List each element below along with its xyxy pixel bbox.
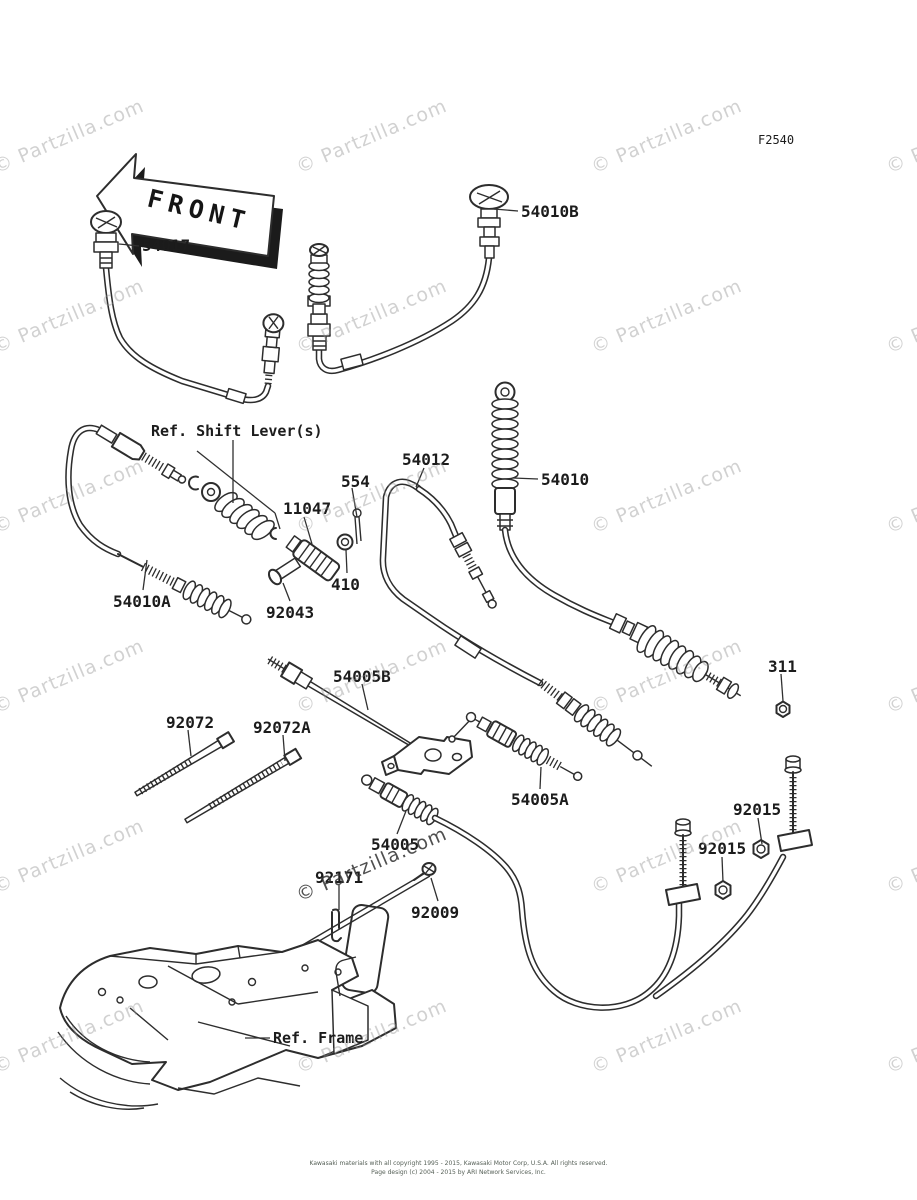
parts-diagram-page: FRONT bbox=[0, 0, 917, 1200]
part-label-54010a: 54010A bbox=[113, 592, 171, 611]
part-label-54012: 54012 bbox=[402, 450, 450, 469]
nut-92015-right-drawing bbox=[754, 840, 769, 858]
washer-410-drawing bbox=[338, 535, 353, 550]
leader-line-92072a bbox=[283, 735, 285, 761]
leader-line-92043 bbox=[283, 583, 290, 601]
part-label-410: 410 bbox=[331, 575, 360, 594]
leader-line-ref-shift-lever bbox=[275, 513, 280, 529]
cable-54010b-drawing bbox=[308, 185, 508, 371]
leader-line-92015-left bbox=[722, 857, 723, 882]
part-label-92009: 92009 bbox=[411, 903, 459, 922]
frame-graphic bbox=[58, 904, 396, 1110]
leader-line-410 bbox=[346, 550, 347, 573]
leader-line-54005b bbox=[362, 684, 368, 710]
part-label-54010b: 54010B bbox=[521, 202, 579, 221]
leader-line-92009 bbox=[431, 878, 438, 901]
tie-92072a-drawing bbox=[183, 749, 301, 826]
part-label-figure-code: F2540 bbox=[758, 133, 794, 147]
part-label-311: 311 bbox=[768, 657, 797, 676]
part-label-54010: 54010 bbox=[541, 470, 589, 489]
nut-311-drawing bbox=[777, 702, 790, 718]
leader-line-54005a bbox=[540, 767, 541, 789]
cable-clamp bbox=[666, 884, 700, 905]
nut-92015-left-drawing bbox=[716, 881, 731, 899]
circlip-icon bbox=[271, 528, 277, 539]
bolt-92015-right-drawing bbox=[778, 756, 812, 851]
footer-copyright-line1: Kawasaki materials with all copyright 19… bbox=[0, 1160, 917, 1167]
bolt-92015-left-drawing bbox=[666, 819, 700, 905]
part-label-92072: 92072 bbox=[166, 713, 214, 732]
tie-92072-drawing bbox=[133, 732, 234, 799]
cable-clamp bbox=[778, 830, 812, 851]
part-label-ref-frame: Ref. Frame bbox=[273, 1029, 363, 1047]
part-label-ref-shift-lever: Ref. Shift Lever(s) bbox=[151, 422, 323, 440]
part-label-92072a: 92072A bbox=[253, 718, 311, 737]
cable-54010-drawing bbox=[492, 383, 748, 709]
washer-icon bbox=[202, 483, 220, 501]
part-label-54005a: 54005A bbox=[511, 790, 569, 809]
part-label-11047: 11047 bbox=[283, 499, 331, 518]
screw-92009-drawing bbox=[414, 863, 436, 880]
leader-line-54005 bbox=[397, 811, 406, 834]
leader-line-54012 bbox=[416, 468, 424, 487]
cable-54005a-drawing bbox=[463, 707, 586, 786]
part-label-54005: 54005 bbox=[371, 835, 419, 854]
part-label-92171: 92171 bbox=[315, 868, 363, 887]
part-label-54017: 54017 bbox=[142, 236, 190, 255]
bracket-plate-drawing bbox=[382, 717, 473, 775]
circlip-icon bbox=[189, 477, 198, 490]
part-label-92015-right: 92015 bbox=[733, 800, 781, 819]
leader-line-54010 bbox=[513, 478, 538, 479]
leader-line-311 bbox=[781, 674, 783, 701]
leader-line-92072 bbox=[188, 730, 191, 756]
cable-adjuster-54010b bbox=[308, 244, 330, 350]
part-label-92043: 92043 bbox=[266, 603, 314, 622]
part-label-54005b: 54005B bbox=[333, 667, 391, 686]
spring-icon bbox=[212, 489, 278, 543]
footer-copyright-line2: Page design (c) 2004 - 2015 by ARI Netwo… bbox=[0, 1169, 917, 1176]
part-label-92015-left: 92015 bbox=[698, 839, 746, 858]
bolt-92043-drawing bbox=[266, 556, 302, 587]
part-label-554: 554 bbox=[341, 472, 370, 491]
